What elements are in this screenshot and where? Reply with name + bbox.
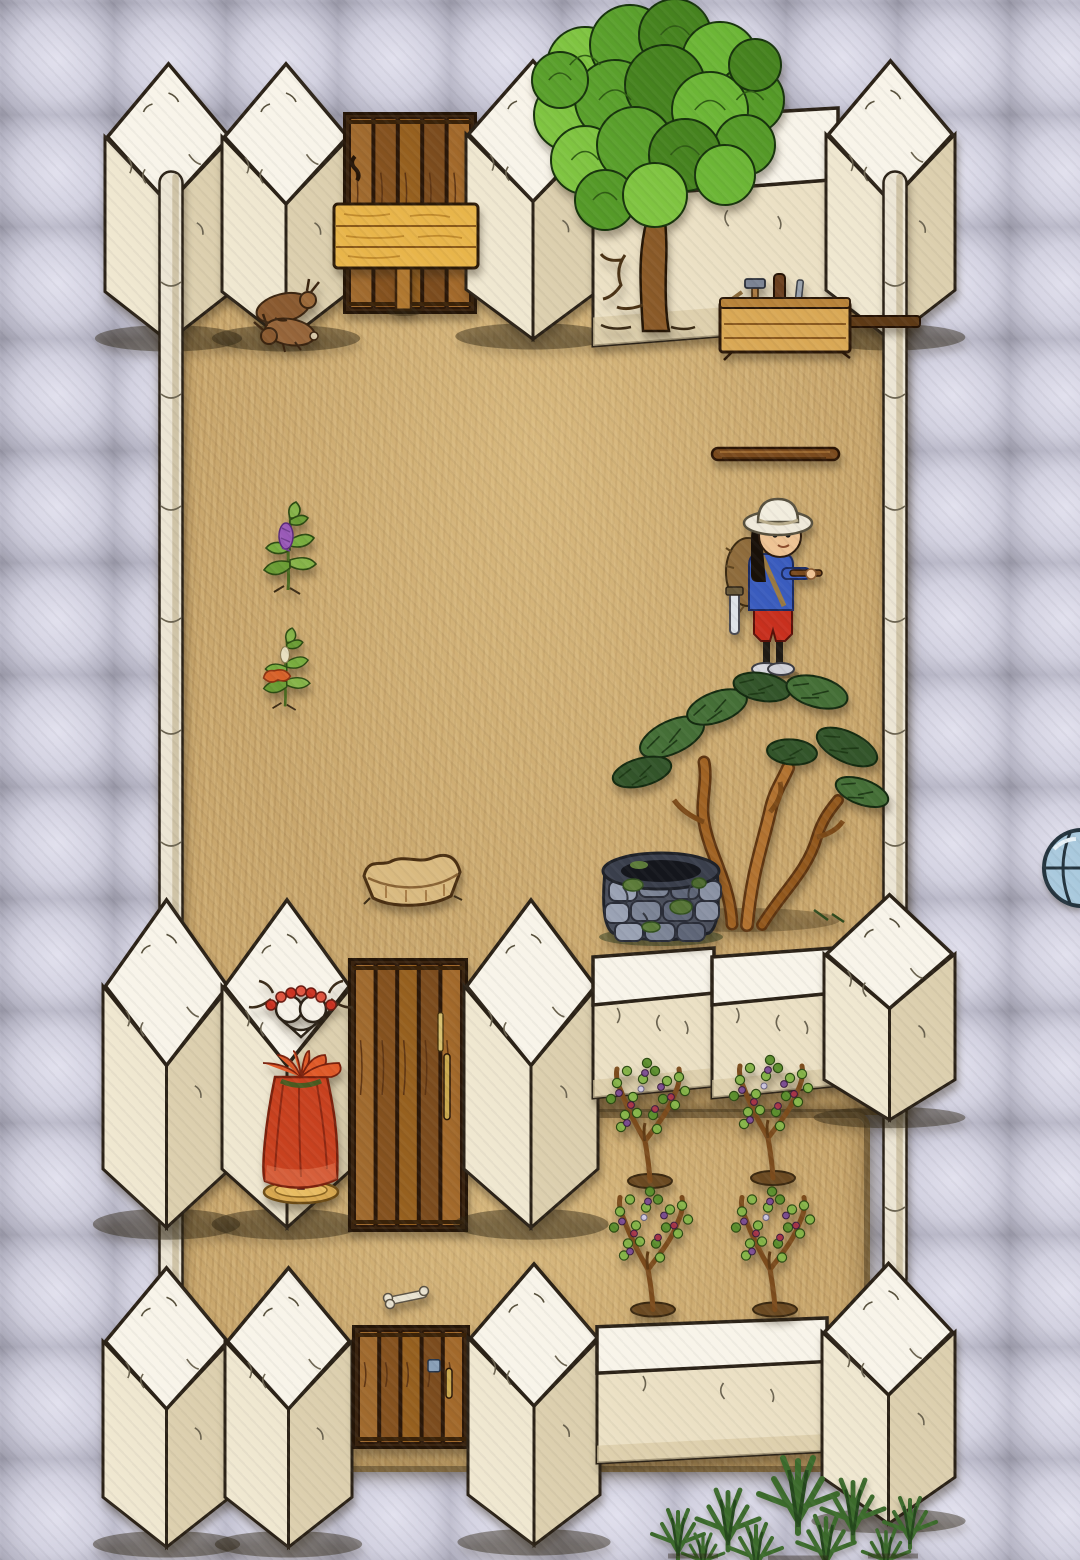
stone-well[interactable] — [595, 835, 727, 947]
toolbox-bench[interactable] — [712, 272, 924, 358]
door-south[interactable] — [352, 1325, 470, 1449]
grapevine-graphic — [720, 1050, 826, 1185]
old-basket[interactable] — [358, 846, 466, 910]
mannequin-red-dress[interactable] — [235, 985, 367, 1215]
wall-pillar-m-3[interactable] — [464, 893, 598, 1238]
rabbits-graphic — [235, 272, 350, 354]
grapevine-4[interactable] — [722, 1180, 828, 1318]
grapevine-2[interactable] — [720, 1050, 826, 1185]
plant-graphic — [244, 612, 326, 710]
pillar-graphic — [464, 893, 598, 1238]
wooden-shaft[interactable] — [708, 440, 843, 468]
grapevine-graphic — [722, 1180, 828, 1318]
bone[interactable] — [380, 1283, 432, 1311]
door-graphic — [352, 1325, 470, 1449]
rabbit-carcasses[interactable] — [235, 272, 350, 354]
blank-sign[interactable] — [330, 200, 482, 320]
sign-graphic — [330, 200, 482, 320]
grapevine-1[interactable] — [597, 1053, 703, 1188]
evergreen-sapling[interactable] — [648, 1452, 960, 1560]
game-world[interactable] — [0, 0, 1080, 1560]
orb-graphic — [1040, 825, 1080, 911]
wall-graphic — [597, 1318, 827, 1463]
grapevine-graphic — [600, 1180, 706, 1318]
wall-flat-south[interactable] — [597, 1318, 827, 1463]
pillar-graphic — [103, 893, 230, 1238]
sapling-graphic — [648, 1452, 960, 1560]
wall-pillar-mw-1[interactable] — [103, 893, 230, 1238]
purple-flower-plant[interactable] — [248, 483, 328, 595]
wall-pillar-sw-2[interactable] — [225, 1262, 352, 1556]
basket-graphic — [358, 846, 466, 910]
grapevine-3[interactable] — [600, 1180, 706, 1318]
mannequin-graphic — [235, 985, 367, 1215]
pillar-graphic — [103, 1262, 230, 1556]
pillar-graphic — [225, 1262, 352, 1556]
shaft-graphic — [708, 440, 843, 468]
blue-orb[interactable] — [1040, 825, 1080, 911]
pillar-graphic — [468, 1258, 600, 1554]
plant-graphic — [248, 483, 328, 595]
orange-flower-plant[interactable] — [244, 612, 326, 710]
well-graphic — [595, 835, 727, 947]
bone-graphic — [380, 1283, 432, 1311]
wall-pillar-sw-1[interactable] — [103, 1262, 230, 1556]
toolbox-graphic — [712, 272, 924, 358]
grapevine-graphic — [597, 1053, 703, 1188]
wall-pillar-s-3[interactable] — [468, 1258, 600, 1554]
